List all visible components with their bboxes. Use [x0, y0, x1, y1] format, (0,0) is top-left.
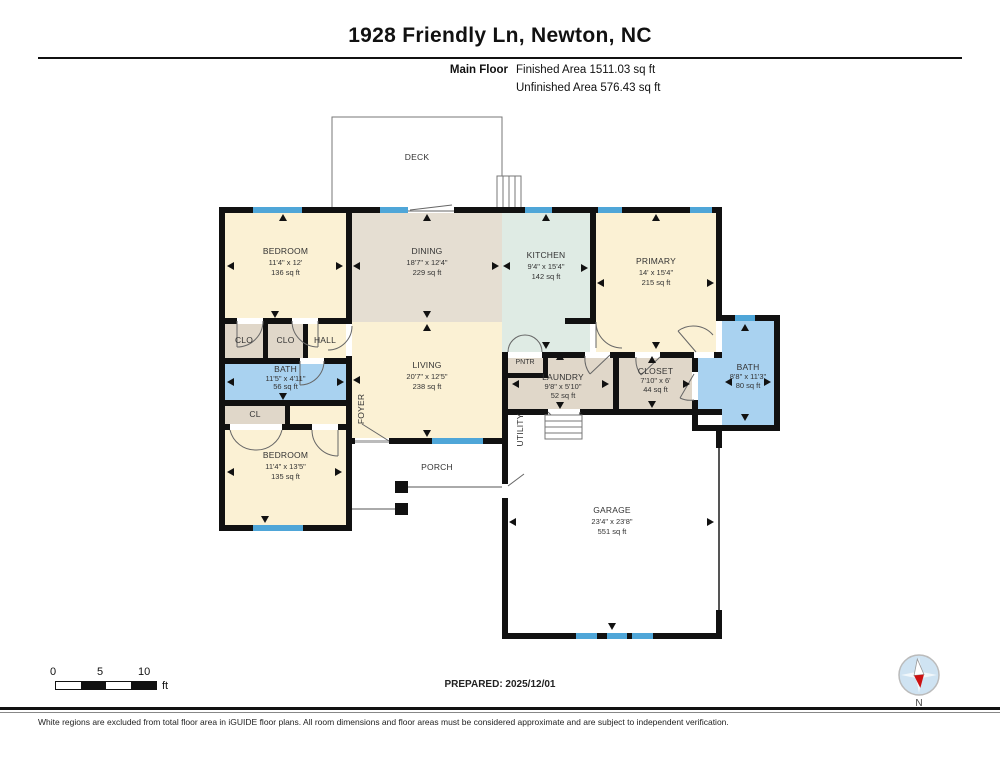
room-label-clo2: CLO: [268, 335, 303, 347]
scale-bar: [55, 681, 157, 690]
room-label-pntr: PNTR: [507, 358, 543, 368]
room-label-closet: CLOSET 7'10" x 6' 44 sq ft: [619, 366, 692, 394]
room-label-laundry: LAUNDRY 9'8" x 5'10" 52 sq ft: [513, 372, 613, 400]
room-label-deck: DECK: [332, 152, 502, 164]
room-label-cl: CL: [225, 409, 285, 421]
room-label-bedroom-bl: BEDROOM 11'4" x 13'5" 135 sq ft: [225, 450, 346, 483]
room-label-porch: PORCH: [392, 462, 482, 474]
room-label-primary: PRIMARY 14' x 15'4" 215 sq ft: [596, 256, 716, 289]
room-label-bath-right: BATH 8'8" x 11'3" 80 sq ft: [712, 362, 784, 390]
room-label-living: LIVING 20'7" x 12'5" 238 sq ft: [352, 360, 502, 393]
room-label-dining: DINING 18'7" x 12'4" 229 sq ft: [352, 246, 502, 279]
room-label-hall: HALL: [300, 335, 350, 347]
room-label-kitchen: KITCHEN 9'4" x 15'4" 142 sq ft: [502, 250, 590, 283]
room-label-bedroom-tl: BEDROOM 11'4" x 12' 136 sq ft: [225, 246, 346, 279]
room-label-utility: UTILITY: [515, 400, 527, 460]
room-label-bath-left: BATH 11'5" x 4'11" 56 sq ft: [225, 365, 346, 392]
floorplan-page: 1928 Friendly Ln, Newton, NC Main Floor …: [0, 0, 1000, 772]
room-label-garage: GARAGE 23'4" x 23'8" 551 sq ft: [508, 505, 716, 538]
room-label-clo1: CLO: [225, 335, 263, 347]
room-label-foyer: FOYER: [356, 379, 368, 439]
